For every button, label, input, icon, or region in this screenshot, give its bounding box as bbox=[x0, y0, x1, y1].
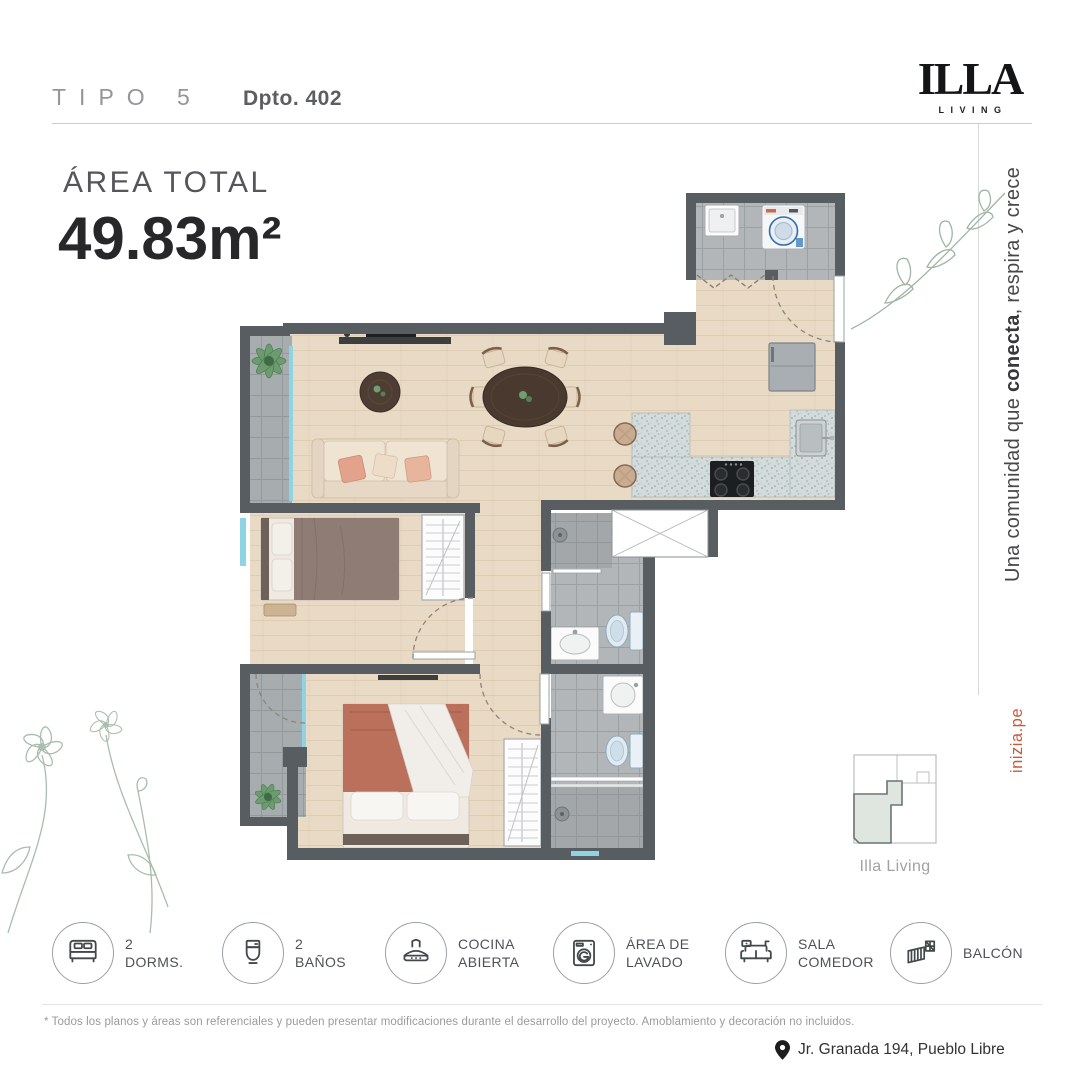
feature-laundry: ÁREA DELAVADO bbox=[553, 922, 690, 984]
bed-single bbox=[261, 518, 399, 600]
feature-line2: BAÑOS bbox=[295, 953, 346, 971]
balcony-icon bbox=[890, 922, 952, 984]
laundry-sink-icon bbox=[705, 205, 739, 236]
shower-glass bbox=[553, 569, 601, 573]
header-divider bbox=[52, 123, 1032, 124]
address-text: Jr. Granada 194, Pueblo Libre bbox=[798, 1041, 1005, 1059]
tagline-part1: Una comunidad que bbox=[1002, 392, 1024, 582]
site-minimap-diagram bbox=[843, 750, 947, 850]
washer-icon bbox=[762, 205, 805, 249]
area-total-label: ÁREA TOTAL bbox=[63, 166, 270, 200]
feature-line2: LAVADO bbox=[626, 953, 690, 971]
tv-bedroom bbox=[378, 675, 438, 680]
feature-bedrooms: 2DORMS. bbox=[52, 922, 183, 984]
brand-name: ILLA bbox=[903, 56, 1037, 102]
dining-table bbox=[483, 367, 567, 427]
footer-divider bbox=[42, 1004, 1042, 1005]
feature-line1: COCINA bbox=[458, 935, 519, 953]
washing-machine-icon bbox=[553, 922, 615, 984]
bath1-sliding-door bbox=[542, 573, 550, 611]
bar-stool-icon bbox=[614, 423, 636, 445]
feature-line1: BALCÓN bbox=[963, 944, 1023, 962]
fridge-icon bbox=[769, 343, 815, 391]
coffee-table bbox=[360, 372, 400, 412]
sofa-icon bbox=[725, 922, 787, 984]
site-minimap-label: Illa Living bbox=[843, 858, 947, 876]
vanity-sink-2 bbox=[603, 676, 643, 714]
feature-living-dining: SALACOMEDOR bbox=[725, 922, 874, 984]
site-minimap: Illa Living bbox=[843, 750, 947, 876]
bedroom-bench bbox=[264, 604, 296, 616]
feature-line2: COMEDOR bbox=[798, 953, 874, 971]
floor-plan bbox=[240, 185, 850, 875]
bed-icon bbox=[52, 922, 114, 984]
feature-line2: ABIERTA bbox=[458, 953, 519, 971]
brand-logo: ILLA LIVING bbox=[903, 56, 1037, 115]
feature-line1: ÁREA DE bbox=[626, 935, 690, 953]
ventilation-shaft bbox=[612, 510, 708, 557]
closet-1 bbox=[422, 515, 464, 600]
entry-door-leaf bbox=[834, 276, 844, 342]
address-row: Jr. Granada 194, Pueblo Libre bbox=[775, 1040, 1005, 1060]
feature-line1: 2 bbox=[125, 935, 183, 953]
branch-decoration-icon bbox=[845, 183, 1015, 333]
tv-console bbox=[339, 337, 451, 344]
feature-line2: DORMS. bbox=[125, 953, 183, 971]
plant-icon bbox=[252, 344, 286, 378]
disclaimer-text: * Todos los planos y áreas son referenci… bbox=[44, 1016, 1054, 1028]
feature-kitchen: COCINAABIERTA bbox=[385, 922, 519, 984]
bar-stool-icon bbox=[614, 465, 636, 487]
toilet-icon bbox=[222, 922, 284, 984]
feature-line1: SALA bbox=[798, 935, 874, 953]
feature-bathrooms: 2BAÑOS bbox=[222, 922, 346, 984]
brand-subtitle: LIVING bbox=[903, 105, 1037, 115]
unit-number-label: Dpto. 402 bbox=[243, 87, 342, 111]
flyer-page: TIPO 5 Dpto. 402 ILLA LIVING ÁREA TOTAL … bbox=[0, 0, 1080, 1080]
feature-line1: 2 bbox=[295, 935, 346, 953]
shower-threshold bbox=[551, 777, 643, 781]
vanity-sink-1 bbox=[551, 627, 599, 660]
apartment-type-label: TIPO 5 bbox=[52, 84, 203, 111]
feature-balcony: BALCÓN bbox=[890, 922, 1023, 984]
bedroom1-door-leaf bbox=[413, 652, 475, 659]
bed-double bbox=[343, 704, 473, 848]
flowers-decoration-icon bbox=[0, 695, 180, 935]
location-pin-icon bbox=[775, 1040, 790, 1060]
website-vertical: inizia.pe bbox=[1008, 690, 1027, 790]
closet-2 bbox=[504, 739, 541, 846]
kitchen-hood-icon bbox=[385, 922, 447, 984]
stove-icon bbox=[710, 461, 754, 497]
bedroom2-door-leaf bbox=[540, 674, 549, 724]
sofa bbox=[312, 439, 459, 498]
